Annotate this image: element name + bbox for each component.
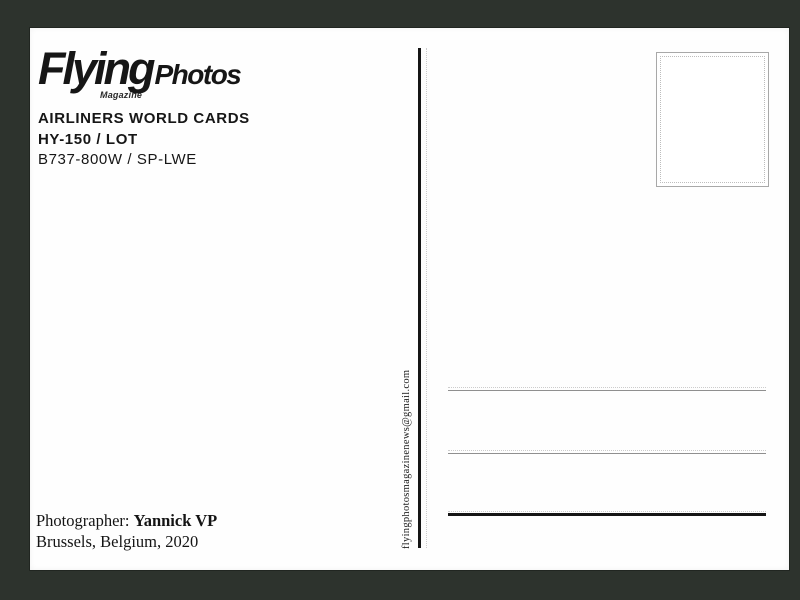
contact-email: flyingphotosmagazinenews@gmail.com: [401, 384, 412, 549]
brand-logo: FlyingPhotos Magazine: [38, 46, 240, 91]
center-divider-perforation: [426, 48, 427, 548]
card-number: HY-150 / LOT: [38, 130, 250, 151]
location-date: Brussels, Belgium, 2020: [36, 531, 217, 552]
address-line-1: [448, 387, 766, 391]
address-line-3: [448, 511, 766, 516]
logo-brand-suffix-text: Photos: [155, 59, 241, 91]
stamp-box: [656, 52, 769, 187]
photographer-credit: Photographer: Yannick VP Brussels, Belgi…: [36, 510, 217, 552]
photographer-name: Yannick VP: [134, 511, 218, 530]
stamp-box-inner-border: [660, 56, 765, 183]
card-title-block: AIRLINERS WORLD CARDS HY-150 / LOT B737-…: [38, 109, 250, 171]
postcard-back: FlyingPhotos Magazine AIRLINERS WORLD CA…: [30, 28, 789, 570]
series-title: AIRLINERS WORLD CARDS: [38, 109, 250, 130]
logo-brand-text: Flying: [38, 46, 153, 91]
logo-magazine-text: Magazine: [100, 90, 142, 100]
center-divider-line: [418, 48, 421, 548]
photographer-label: Photographer:: [36, 511, 134, 530]
photographer-line: Photographer: Yannick VP: [36, 510, 217, 531]
aircraft-registration: B737-800W / SP-LWE: [38, 150, 250, 171]
address-line-2: [448, 450, 766, 454]
